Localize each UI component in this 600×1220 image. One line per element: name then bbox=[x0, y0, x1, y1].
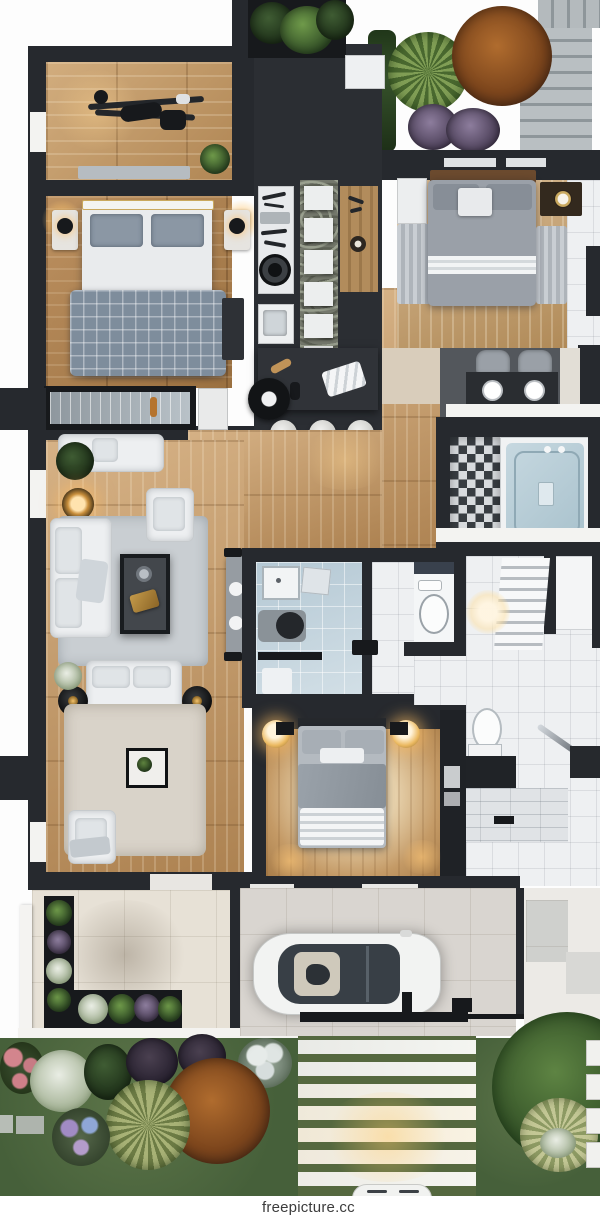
purple-blue-flowers bbox=[52, 1108, 110, 1166]
stepping-stone-garden bbox=[16, 1116, 44, 1134]
sofa-cushion bbox=[133, 666, 171, 688]
table-plant bbox=[137, 757, 152, 772]
planter-flowers bbox=[158, 996, 182, 1022]
purple-shrub bbox=[446, 108, 500, 152]
paver-strip bbox=[298, 1040, 476, 1054]
bed-accent-pillow bbox=[458, 188, 492, 216]
paver-strip bbox=[298, 1062, 476, 1076]
gym-window-sill bbox=[30, 112, 46, 152]
bed-headboard bbox=[82, 200, 214, 210]
sofa-cushion bbox=[92, 666, 130, 688]
patio-white-wall bbox=[20, 905, 32, 1037]
floor-item bbox=[494, 816, 514, 824]
orange-tree bbox=[452, 6, 552, 106]
shower-drain bbox=[276, 578, 281, 583]
pepper-mill bbox=[290, 382, 300, 400]
wall-right-stair-edge bbox=[592, 548, 600, 648]
wall-sink bbox=[352, 640, 378, 655]
bed-duvet bbox=[298, 764, 386, 808]
cutting-board bbox=[260, 212, 290, 224]
kitchen-plant-fronds bbox=[316, 0, 354, 40]
wall-bath-top bbox=[436, 417, 600, 437]
cup-on-nightstand bbox=[554, 190, 572, 208]
toilet-dark-seat bbox=[276, 612, 304, 639]
pale-strip bbox=[382, 348, 440, 404]
wall-left-protrusion bbox=[0, 388, 46, 430]
stone-path-corner bbox=[538, 0, 600, 28]
wc-shelf bbox=[414, 562, 454, 574]
wc-bottom-wall bbox=[404, 642, 466, 656]
living-window-sill bbox=[30, 822, 46, 862]
wall-garage-right bbox=[516, 888, 524, 1014]
living-window-sill bbox=[30, 470, 46, 518]
wardrobe-tag bbox=[444, 792, 460, 806]
vanity-chair bbox=[476, 350, 510, 374]
bedroom-dresser bbox=[222, 298, 244, 360]
wall-gym-top bbox=[28, 46, 258, 62]
closet-side-cabinet bbox=[198, 388, 228, 430]
closet-glass bbox=[50, 392, 190, 424]
gym-plant bbox=[200, 144, 230, 174]
planter-shrub bbox=[46, 958, 72, 984]
gym-weight-plate bbox=[94, 90, 108, 104]
island-tray bbox=[248, 378, 290, 420]
sofa-cushion bbox=[55, 527, 82, 574]
driveway bbox=[298, 1036, 476, 1196]
wc-cistern bbox=[418, 580, 442, 591]
side-walkway-slab bbox=[566, 952, 600, 994]
car-front-grille bbox=[367, 1190, 387, 1193]
fridge bbox=[345, 55, 385, 89]
bath-mat bbox=[262, 668, 292, 694]
car-rear-window-line bbox=[366, 946, 369, 1002]
car-mirror bbox=[400, 930, 412, 937]
stepping-stone bbox=[304, 314, 333, 338]
counter-bowl bbox=[350, 236, 366, 252]
laundry-pale-floor bbox=[560, 348, 580, 408]
planter-box-edge bbox=[586, 1040, 600, 1066]
bed-pillow bbox=[486, 184, 532, 210]
console-plate bbox=[229, 616, 243, 630]
living-plant bbox=[56, 442, 94, 480]
white-flowers-right bbox=[540, 1128, 576, 1158]
bath-shelf-band bbox=[446, 404, 600, 417]
wall-sconce bbox=[224, 548, 242, 557]
vanity-mirror bbox=[482, 380, 503, 401]
bed-pillow bbox=[90, 214, 143, 247]
bed-white-runner bbox=[428, 256, 536, 274]
bed-pillow bbox=[151, 214, 204, 247]
palm-garden bbox=[106, 1080, 190, 1170]
stepping-stone bbox=[304, 186, 333, 210]
planter-flowers bbox=[108, 994, 136, 1024]
planter-shrub bbox=[47, 988, 71, 1012]
stepping-stone-garden bbox=[0, 1115, 13, 1133]
bedside-table bbox=[276, 722, 294, 735]
bath-bench bbox=[258, 652, 322, 660]
car bbox=[253, 933, 441, 1015]
bed-accent-pillow bbox=[320, 748, 364, 763]
living-door-gap bbox=[150, 874, 212, 890]
wall-left-protrusion bbox=[0, 756, 46, 800]
dark-purple-plant bbox=[126, 1038, 178, 1086]
wc-top-wall bbox=[404, 548, 466, 562]
stair-landing bbox=[554, 556, 596, 630]
bath-faucet bbox=[558, 446, 565, 453]
wardrobe-tag bbox=[444, 766, 460, 788]
shower-tray bbox=[262, 566, 300, 600]
floorplan-render: freepicture.cc bbox=[0, 0, 600, 1220]
stepping-stone bbox=[304, 218, 333, 242]
glass-shelf bbox=[301, 567, 332, 596]
car-front-grille bbox=[399, 1190, 419, 1193]
stepping-stone bbox=[304, 250, 333, 274]
bath-bottom-shelf bbox=[436, 528, 600, 542]
chaise-pillow bbox=[92, 438, 118, 462]
gym-towel bbox=[176, 94, 190, 104]
kitchen-sink-basin bbox=[263, 310, 287, 336]
bath-faucet bbox=[544, 446, 551, 453]
floor-glow bbox=[268, 844, 312, 878]
wall-sconce bbox=[224, 652, 242, 661]
vanity-mirror bbox=[524, 380, 545, 401]
table-lamp bbox=[57, 218, 73, 234]
wardrobe-white bbox=[397, 178, 427, 224]
ribbed-blanket bbox=[300, 808, 384, 846]
window-top-right-1 bbox=[444, 158, 496, 167]
cooktop-pan bbox=[259, 254, 291, 286]
driveway-light-glow bbox=[318, 1092, 458, 1182]
stepping-stone bbox=[304, 282, 333, 306]
closet-figure bbox=[150, 397, 157, 417]
console-plate bbox=[229, 582, 243, 596]
wall-right-edge bbox=[586, 246, 600, 316]
gym-bench bbox=[160, 110, 186, 130]
floor-glow bbox=[400, 840, 444, 874]
planter-box-edge bbox=[586, 1074, 600, 1100]
hall-ambient-light bbox=[300, 430, 390, 490]
gate-post bbox=[402, 992, 412, 1014]
utility-cabinet bbox=[570, 746, 600, 778]
window-top-right-2 bbox=[506, 158, 546, 167]
planter-shrub bbox=[47, 930, 71, 954]
bath-caddy bbox=[538, 482, 554, 506]
planter-flowers bbox=[134, 994, 160, 1022]
bedside-table bbox=[390, 722, 408, 735]
plaid-blanket bbox=[70, 290, 226, 376]
planter-shrub bbox=[46, 900, 72, 926]
vanity-chair bbox=[518, 350, 552, 374]
planter-box-edge bbox=[586, 1142, 600, 1168]
dry-plant bbox=[54, 662, 82, 690]
brick-tiles bbox=[450, 788, 568, 842]
ceiling-light-glow bbox=[466, 590, 510, 634]
side-walkway-tiles bbox=[526, 900, 568, 962]
planter-flowers bbox=[78, 994, 108, 1024]
bathroom-white-zone bbox=[372, 562, 414, 694]
sofa-throw bbox=[75, 558, 109, 603]
table-lamp bbox=[229, 218, 245, 234]
curtain bbox=[536, 226, 567, 304]
watermark: freepicture.cc bbox=[262, 1199, 355, 1216]
gate-bracket bbox=[452, 998, 472, 1012]
wc-toilet bbox=[419, 594, 449, 634]
wall-gym-bottom bbox=[28, 178, 258, 196]
gate-bar bbox=[300, 1012, 468, 1022]
car-seat bbox=[306, 964, 330, 985]
armchair-cushion bbox=[153, 497, 185, 531]
gym-console bbox=[78, 166, 190, 179]
planter-box-edge bbox=[586, 1108, 600, 1134]
table-dish bbox=[136, 566, 152, 582]
